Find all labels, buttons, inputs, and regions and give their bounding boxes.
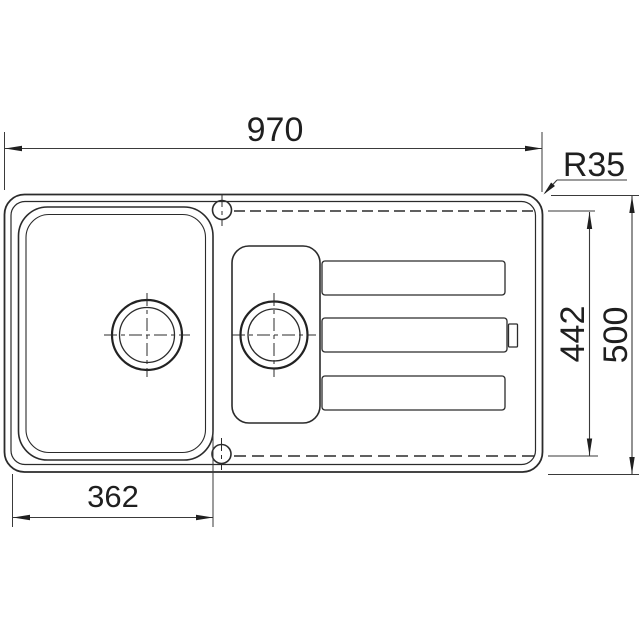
drainboard-groove-top — [322, 261, 505, 295]
drainboard-groove-middle — [322, 318, 507, 352]
dimension-label-970: 970 — [247, 111, 304, 149]
arrowhead-right — [525, 146, 542, 151]
main-bowl-inner-rim — [26, 215, 206, 453]
drainboard — [322, 261, 518, 410]
arrowhead-left — [13, 515, 30, 520]
arrowhead-left — [5, 146, 22, 151]
main-bowl-outer-rim — [19, 207, 214, 460]
tap-hole-top — [213, 194, 232, 226]
sink-technical-drawing: 970 R35 442 500 362 — [0, 0, 640, 640]
main-bowl-drain — [104, 293, 190, 377]
dimension-label-442: 442 — [554, 306, 592, 363]
drainboard-groove-tab — [509, 324, 518, 347]
arrowhead-top — [629, 196, 634, 213]
arrowhead-bottom — [629, 457, 634, 474]
tap-hole-bottom — [212, 438, 231, 470]
dimension-label-500: 500 — [597, 307, 635, 364]
dimension-overall-width: 970 — [5, 111, 543, 192]
dimension-label-r35: R35 — [563, 146, 625, 184]
dimension-cutout-depth: 442 — [548, 211, 598, 456]
arrowhead-top — [587, 212, 592, 229]
dimension-label-362: 362 — [87, 479, 139, 514]
dimension-corner-radius: R35 — [544, 146, 628, 195]
sink-body — [5, 194, 543, 472]
sink-inner-rim — [11, 202, 536, 465]
drainboard-groove-bottom — [322, 376, 505, 410]
half-bowl-drain — [232, 293, 316, 377]
arrowhead-bottom — [587, 439, 592, 456]
arrowhead-right — [196, 515, 213, 520]
dimension-bowl-width: 362 — [13, 430, 214, 527]
sink-outer-edge — [5, 195, 543, 473]
